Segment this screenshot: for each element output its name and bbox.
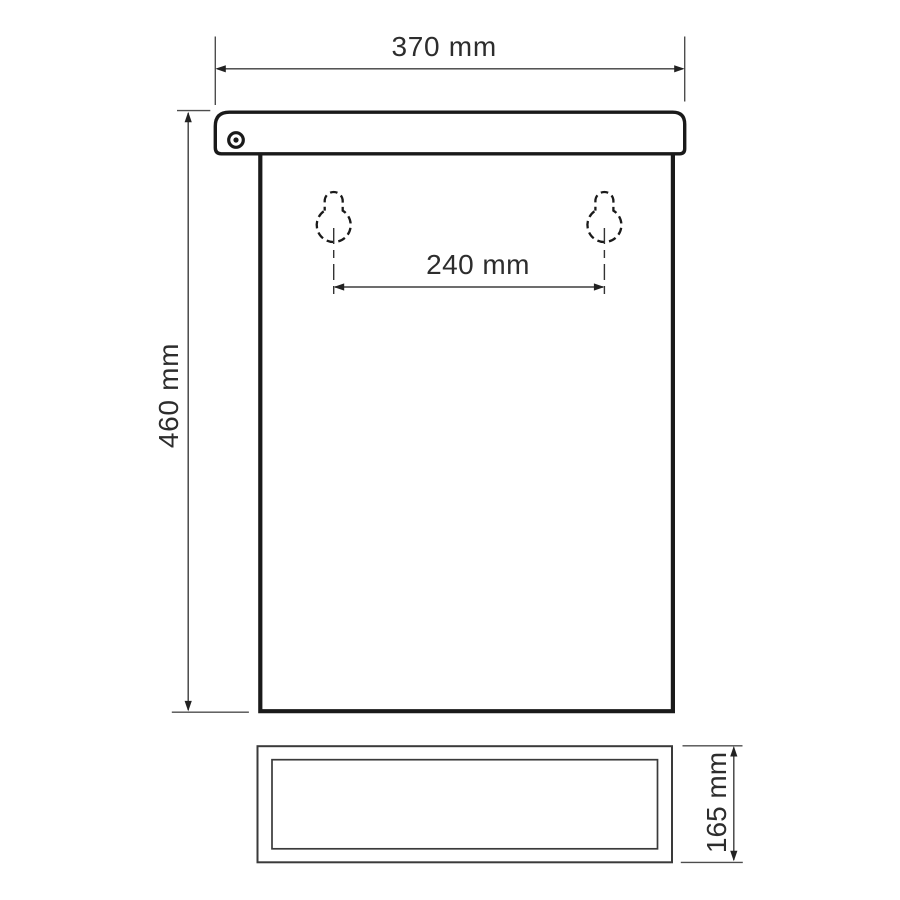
svg-text:240 mm: 240 mm xyxy=(426,249,530,280)
svg-text:460 mm: 460 mm xyxy=(153,343,184,448)
svg-text:165 mm: 165 mm xyxy=(701,752,732,853)
svg-text:370 mm: 370 mm xyxy=(392,31,497,62)
